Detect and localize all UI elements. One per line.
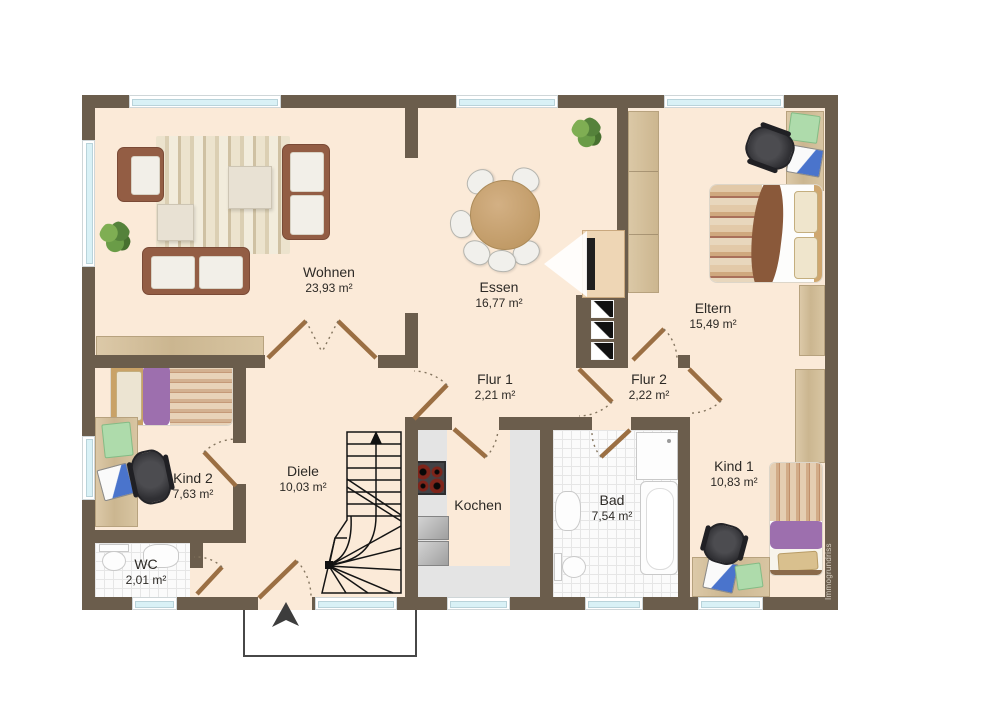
door-leaf-wohnen-left bbox=[268, 321, 306, 358]
door-leaf-entrance bbox=[259, 561, 297, 598]
room-label-essen: Essen 16,77 m² bbox=[439, 279, 559, 310]
room-label-bad: Bad 7,54 m² bbox=[552, 492, 672, 523]
room-label-eltern: Eltern 15,49 m² bbox=[653, 300, 773, 331]
door-leaf-wohnen-right bbox=[338, 321, 376, 358]
room-area: 10,03 m² bbox=[243, 480, 363, 494]
door-arc bbox=[579, 402, 612, 416]
room-area: 7,63 m² bbox=[133, 487, 253, 501]
room-area: 2,01 m² bbox=[86, 573, 206, 587]
staircase-direction-line bbox=[333, 442, 376, 564]
room-name: Kind 1 bbox=[674, 458, 794, 475]
room-name: WC bbox=[86, 556, 206, 573]
room-name: Flur 1 bbox=[435, 371, 555, 388]
room-name: Diele bbox=[243, 463, 363, 480]
staircase bbox=[322, 431, 401, 593]
room-area: 10,83 m² bbox=[674, 475, 794, 489]
door-arc bbox=[204, 439, 236, 452]
door-arc bbox=[664, 329, 677, 358]
door-leaf-eltern bbox=[633, 329, 664, 360]
staircase-winder-treads bbox=[329, 526, 401, 593]
room-label-wohnen: Wohnen 23,93 m² bbox=[269, 264, 389, 295]
floorplan-canvas: Wohnen 23,93 m² Essen 16,77 m² Eltern 15… bbox=[0, 0, 1000, 706]
room-label-kind1: Kind 1 10,83 m² bbox=[674, 458, 794, 489]
door-swing-arcs bbox=[194, 321, 721, 596]
door-leaf-bad bbox=[601, 430, 630, 457]
watermark: Immogrundriss bbox=[824, 538, 838, 600]
room-name: Eltern bbox=[653, 300, 773, 317]
door-arc bbox=[486, 430, 498, 457]
room-area: 2,21 m² bbox=[435, 388, 555, 402]
room-name: Kochen bbox=[418, 497, 538, 514]
entrance-arrow bbox=[272, 602, 299, 627]
staircase-newel bbox=[325, 561, 333, 569]
room-label-flur2: Flur 2 2,22 m² bbox=[589, 371, 709, 402]
entrance-porch bbox=[244, 610, 416, 656]
room-area: 16,77 m² bbox=[439, 296, 559, 310]
staircase-up-arrow bbox=[370, 431, 382, 444]
door-arc bbox=[297, 561, 311, 596]
room-name: Essen bbox=[439, 279, 559, 296]
room-label-kind2: Kind 2 7,63 m² bbox=[133, 470, 253, 501]
door-leaves bbox=[197, 321, 721, 598]
door-arc bbox=[689, 401, 721, 413]
room-name: Flur 2 bbox=[589, 371, 709, 388]
room-area: 7,54 m² bbox=[552, 509, 672, 523]
room-name: Wohnen bbox=[269, 264, 389, 281]
door-arc bbox=[592, 432, 601, 457]
room-name: Bad bbox=[552, 492, 672, 509]
room-area: 23,93 m² bbox=[269, 281, 389, 295]
room-area: 15,49 m² bbox=[653, 317, 773, 331]
room-label-wc: WC 2,01 m² bbox=[86, 556, 206, 587]
door-arc bbox=[306, 321, 322, 352]
door-arc bbox=[322, 321, 338, 352]
room-area: 2,22 m² bbox=[589, 388, 709, 402]
door-leaf-kochen bbox=[454, 429, 486, 457]
room-label-kochen: Kochen bbox=[418, 497, 538, 514]
plan-overlay bbox=[0, 0, 1000, 706]
room-label-flur1: Flur 1 2,21 m² bbox=[435, 371, 555, 402]
room-name: Kind 2 bbox=[133, 470, 253, 487]
room-label-diele: Diele 10,03 m² bbox=[243, 463, 363, 494]
